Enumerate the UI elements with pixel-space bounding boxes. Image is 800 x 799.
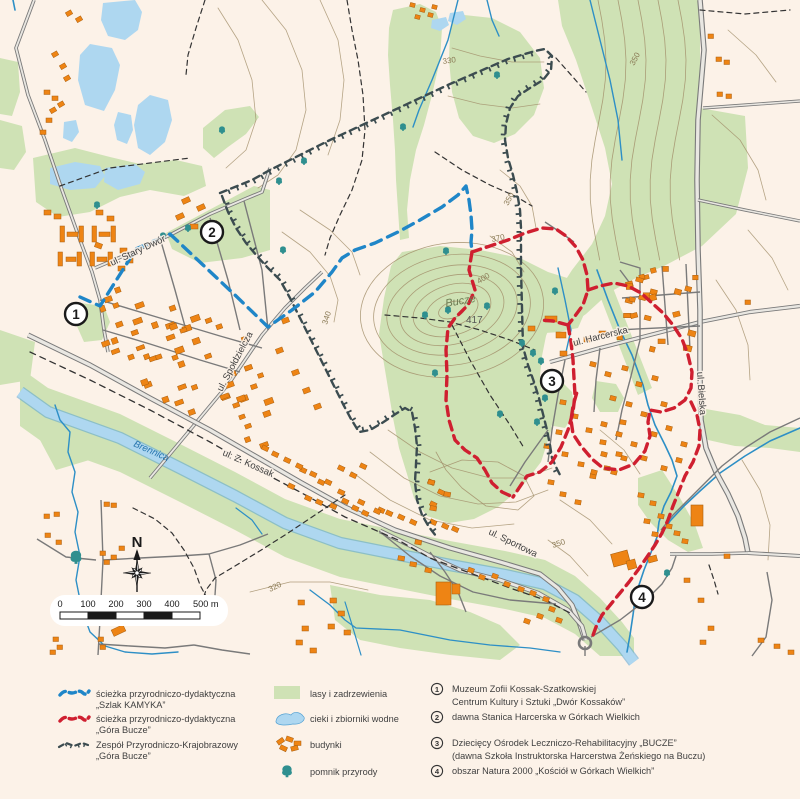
svg-text:2: 2 xyxy=(208,225,216,240)
svg-text:4: 4 xyxy=(638,590,646,605)
svg-text:Zespół Przyrodniczo-Krajobrazo: Zespół Przyrodniczo-Krajobrazowy xyxy=(96,740,238,750)
svg-text:417: 417 xyxy=(466,315,483,326)
svg-text:Muzeum Zofii Kossak-Szatkowski: Muzeum Zofii Kossak-Szatkowskiej xyxy=(452,684,596,694)
svg-text:Dziecięcy Ośrodek Leczniczo-Re: Dziecięcy Ośrodek Leczniczo-Rehabilitacy… xyxy=(452,738,677,748)
svg-text:ścieżka przyrodniczo-dydaktycz: ścieżka przyrodniczo-dydaktyczna xyxy=(96,714,236,724)
svg-text:Centrum Kultury i Sztuki „Dwór: Centrum Kultury i Sztuki „Dwór Kossaków” xyxy=(452,697,625,707)
svg-text:N: N xyxy=(132,534,143,551)
svg-text:„Góra Bucze”: „Góra Bucze” xyxy=(96,751,151,761)
svg-text:ścieżka przyrodniczo-dydaktycz: ścieżka przyrodniczo-dydaktyczna xyxy=(96,689,236,699)
svg-text:lasy i zadrzewienia: lasy i zadrzewienia xyxy=(310,689,388,699)
svg-text:3: 3 xyxy=(548,374,556,389)
svg-text:dawna Stanica Harcerska w Górk: dawna Stanica Harcerska w Górkach Wielki… xyxy=(452,712,640,722)
svg-text:0: 0 xyxy=(57,599,62,609)
svg-text:(dawna Szkoła Instruktorska Ha: (dawna Szkoła Instruktorska Harcerstwa Ż… xyxy=(452,751,705,761)
svg-text:1: 1 xyxy=(72,307,80,322)
svg-text:500 m: 500 m xyxy=(193,599,219,609)
svg-text:budynki: budynki xyxy=(310,740,342,750)
svg-text:400: 400 xyxy=(164,599,179,609)
svg-text:2: 2 xyxy=(435,713,439,722)
svg-text:3: 3 xyxy=(435,739,439,748)
svg-text:100: 100 xyxy=(80,599,95,609)
svg-text:330: 330 xyxy=(442,55,457,66)
svg-text:„Szlak KAMYKA”: „Szlak KAMYKA” xyxy=(96,700,165,710)
svg-text:pomnik przyrody: pomnik przyrody xyxy=(310,767,378,777)
svg-text:200: 200 xyxy=(108,599,123,609)
svg-text:cieki i zbiorniki wodne: cieki i zbiorniki wodne xyxy=(310,714,399,724)
svg-text:obszar Natura 2000 „Kościół w: obszar Natura 2000 „Kościół w Górkach Wi… xyxy=(452,766,654,776)
svg-text:„Góra Bucze”: „Góra Bucze” xyxy=(96,725,151,735)
svg-text:300: 300 xyxy=(136,599,151,609)
